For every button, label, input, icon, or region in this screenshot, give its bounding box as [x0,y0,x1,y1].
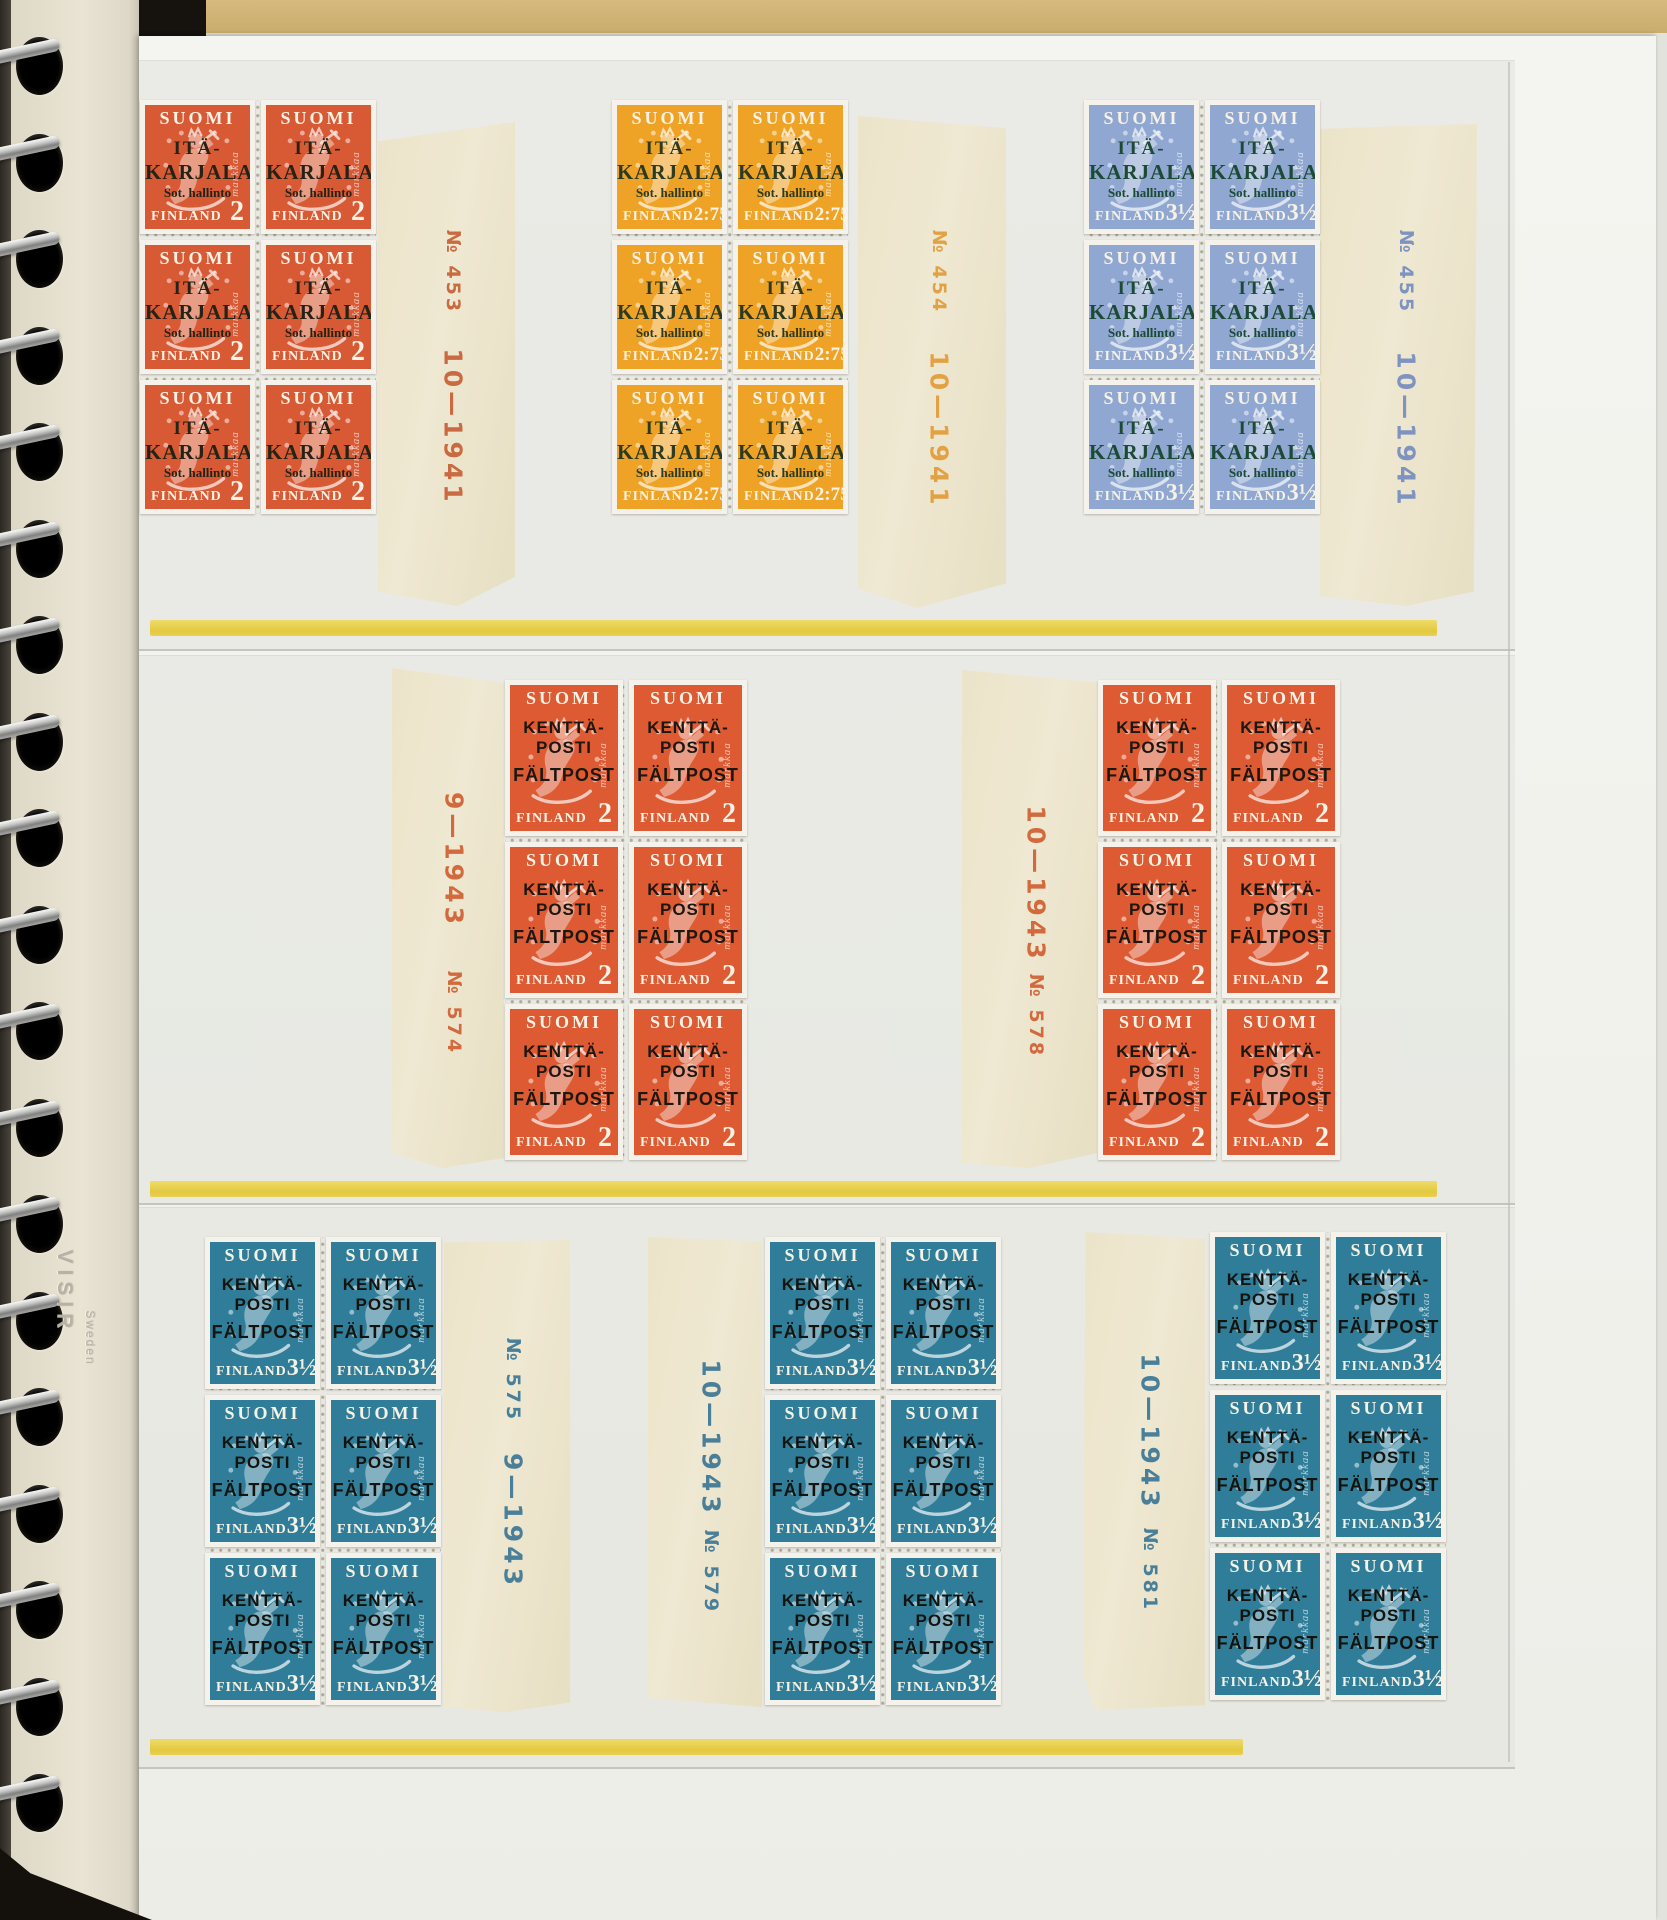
stamp-overprint: KENTTÄ-POSTIFÄLTPOST [1227,880,1335,948]
stamp: SUOMI markkaa KENTTÄ-POSTIFÄLTPOST [205,1237,320,1389]
stamp-finland-label: FINLAND [1216,489,1287,505]
stamp-finland-label: FINLAND [516,811,587,827]
stamp-denomination: 3½ [1292,1668,1320,1691]
overprint-line: KENTTÄ- [510,880,618,900]
stamp-foot: FINLAND 2:75 [617,205,722,225]
stamp-finland-label: FINLAND [337,1522,408,1538]
overprint-line: Sot. hallinto [738,186,843,201]
overprint-line: Sot. hallinto [617,326,722,341]
stamp-overprint: KENTTÄ-POSTIFÄLTPOST [331,1275,436,1343]
stamp-face: SUOMI markkaa KENTTÄ-POSTIFÄLTPOST [891,1242,996,1384]
stamp-block: SUOMI markkaa KENTTÄ-POSTIFÄLTPOST [1098,680,1340,1160]
stamp: SUOMI markkaa ITÄ-KARJALASot. hall [261,380,376,514]
overprint-line: KENTTÄ- [510,1042,618,1062]
stamp-denomination: 2 [722,963,736,988]
overprint-line: POSTI [1336,1448,1441,1468]
overprint-line: KARJALA [1210,440,1315,464]
overprint-line: FÄLTPOST [770,1480,875,1501]
overprint-line: POSTI [1215,1290,1320,1310]
stamp-country-label: SUOMI [1215,1240,1320,1261]
overprint-line: FÄLTPOST [891,1322,996,1343]
stamp-face: SUOMI markkaa ITÄ-KARJALASot. hall [1210,385,1315,509]
stamp-denomination: 3½ [968,1515,996,1538]
overprint-line: FÄLTPOST [770,1638,875,1659]
stamp-foot: FINLAND 2:75 [738,485,843,505]
overprint-line: POSTI [1215,1606,1320,1626]
stamp-face: SUOMI markkaa ITÄ-KARJALASot. hall [1210,105,1315,229]
stamp-country-label: SUOMI [891,1561,996,1582]
stamp-finland-label: FINLAND [151,209,222,225]
stamp-face: SUOMI markkaa ITÄ-KARJALASot. hall [738,385,843,509]
stamp-finland-label: FINLAND [640,973,711,989]
stamp-country-label: SUOMI [210,1403,315,1424]
stamp-face: SUOMI markkaa KENTTÄ-POSTIFÄLTPOST [1336,1553,1441,1695]
overprint-line: POSTI [634,738,742,758]
overprint-line: FÄLTPOST [634,765,742,786]
stamp-overprint: ITÄ-KARJALASot. hallinto [1210,418,1315,481]
stamp-overprint: KENTTÄ-POSTIFÄLTPOST [510,1042,618,1110]
stamp-denomination: 2 [598,963,612,988]
overprint-line: FÄLTPOST [1227,927,1335,948]
overprint-line: KENTTÄ- [891,1591,996,1611]
overprint-line: KARJALA [1089,440,1194,464]
stamp-finland-label: FINLAND [640,811,711,827]
stamp: SUOMI markkaa ITÄ-KARJALASot. hall [1084,240,1199,374]
plate-number-label: № 575 [502,1338,524,1422]
overprint-line: KENTTÄ- [1215,1270,1320,1290]
stamp-foot: FINLAND 2 [1103,801,1211,827]
stamp: SUOMI markkaa KENTTÄ-POSTIFÄLTPOST [886,1395,1001,1547]
overprint-line: KENTTÄ- [770,1433,875,1453]
stamp-overprint: ITÄ-KARJALASot. hallinto [617,278,722,341]
stamp-denomination: 2 [598,1125,612,1150]
overprint-line: POSTI [1103,1062,1211,1082]
stamp-face: SUOMI markkaa ITÄ-KARJALASot. hall [1089,385,1194,509]
stamp-face: SUOMI markkaa KENTTÄ-POSTIFÄLTPOST [891,1400,996,1542]
stamp-overprint: ITÄ-KARJALASot. hallinto [266,278,371,341]
stamp-finland-label: FINLAND [272,209,343,225]
yellow-rule-row3 [150,1739,1243,1755]
stamp-finland-label: FINLAND [337,1364,408,1380]
overprint-line: ITÄ- [738,278,843,300]
overprint-line: KENTTÄ- [770,1591,875,1611]
stamp-denomination: 3½ [847,1515,875,1538]
overprint-line: POSTI [210,1295,315,1315]
plate-number-label: № 574 [443,971,465,1055]
stamp: SUOMI markkaa KENTTÄ-POSTIFÄLTPOST [505,842,623,998]
stamp-face: SUOMI markkaa KENTTÄ-POSTIFÄLTPOST [210,1242,315,1384]
stamp-album-photo: VISIR Sweden № 45310—1941 SUOMI [0,0,1667,1920]
overprint-line: ITÄ- [266,418,371,440]
stamp-finland-label: FINLAND [744,489,815,505]
overprint-line: FÄLTPOST [1215,1317,1320,1338]
stamp-overprint: KENTTÄ-POSTIFÄLTPOST [891,1433,996,1501]
yellow-rule-row1 [150,620,1437,636]
stamp-face: SUOMI markkaa KENTTÄ-POSTIFÄLTPOST [1215,1553,1320,1695]
stamp-foot: FINLAND 2 [1227,1125,1335,1151]
stamp-finland-label: FINLAND [640,1135,711,1151]
stamp-denomination: 3½ [1292,1510,1320,1533]
stamp: SUOMI markkaa KENTTÄ-POSTIFÄLTPOST [1331,1232,1446,1384]
stamp-overprint: KENTTÄ-POSTIFÄLTPOST [1215,1270,1320,1338]
stamp-block: SUOMI markkaa ITÄ-KARJALASot. hall [140,100,376,514]
stamp-finland-label: FINLAND [1221,1517,1292,1533]
stamp-denomination: 3½ [287,1357,315,1380]
stamp-country-label: SUOMI [331,1245,436,1266]
overprint-line: FÄLTPOST [210,1322,315,1343]
stamp: SUOMI markkaa ITÄ-KARJALASot. hall [1084,100,1199,234]
overprint-line: FÄLTPOST [1103,765,1211,786]
stamp-finland-label: FINLAND [897,1364,968,1380]
overprint-line: POSTI [891,1611,996,1631]
stamp-face: SUOMI markkaa KENTTÄ-POSTIFÄLTPOST [1215,1395,1320,1537]
stamp-face: SUOMI markkaa KENTTÄ-POSTIFÄLTPOST [891,1558,996,1700]
overprint-line: Sot. hallinto [617,466,722,481]
overprint-line: FÄLTPOST [210,1638,315,1659]
stamp-overprint: KENTTÄ-POSTIFÄLTPOST [1103,880,1211,948]
stamp-foot: FINLAND 2 [1103,963,1211,989]
stamp-overprint: KENTTÄ-POSTIFÄLTPOST [1103,718,1211,786]
stamp: SUOMI markkaa KENTTÄ-POSTIFÄLTPOST [505,1004,623,1160]
stamp-finland-label: FINLAND [1216,349,1287,365]
overprint-line: KARJALA [266,300,371,324]
stamp-denomination: 3½ [968,1673,996,1696]
stamp-denomination: 3½ [1413,1352,1441,1375]
overprint-line: FÄLTPOST [891,1480,996,1501]
stamp: SUOMI markkaa KENTTÄ-POSTIFÄLTPOST [629,680,747,836]
plate-number-label: № 578 [1025,974,1047,1058]
overprint-line: POSTI [1103,738,1211,758]
stamp-face: SUOMI markkaa KENTTÄ-POSTIFÄLTPOST [210,1400,315,1542]
stamp-country-label: SUOMI [770,1561,875,1582]
stamp-overprint: ITÄ-KARJALASot. hallinto [266,418,371,481]
stamp: SUOMI markkaa ITÄ-KARJALASot. hall [612,380,727,514]
stamp-finland-label: FINLAND [897,1522,968,1538]
stamp-denomination: 3½ [968,1357,996,1380]
overprint-line: FÄLTPOST [634,1089,742,1110]
overprint-line: KARJALA [738,160,843,184]
stamp-face: SUOMI markkaa KENTTÄ-POSTIFÄLTPOST [770,1242,875,1384]
stamp-block: SUOMI markkaa KENTTÄ-POSTIFÄLTPOST [765,1237,1001,1705]
stamp-face: SUOMI markkaa KENTTÄ-POSTIFÄLTPOST [1336,1237,1441,1379]
stamp-denomination: 2 [230,339,244,364]
stamp: SUOMI markkaa KENTTÄ-POSTIFÄLTPOST [505,680,623,836]
printing-date-label: 9—1943 [439,792,468,928]
overprint-line: KENTTÄ- [331,1433,436,1453]
overprint-line: FÄLTPOST [770,1322,875,1343]
stamp: SUOMI markkaa ITÄ-KARJALASot. hall [1205,380,1320,514]
stamp-denomination: 3½ [847,1357,875,1380]
stamp-face: SUOMI markkaa KENTTÄ-POSTIFÄLTPOST [510,847,618,993]
stamp-finland-label: FINLAND [1221,1359,1292,1375]
stamp-country-label: SUOMI [210,1561,315,1582]
stamp: SUOMI markkaa KENTTÄ-POSTIFÄLTPOST [1222,842,1340,998]
overprint-line: KENTTÄ- [210,1275,315,1295]
stamp-country-label: SUOMI [1103,1012,1211,1033]
stamp-foot: FINLAND 3½ [1210,482,1315,505]
stamp-foot: FINLAND 3½ [891,1673,996,1696]
stamp-foot: FINLAND 2 [1227,963,1335,989]
stamp-foot: FINLAND 3½ [1089,342,1194,365]
overprint-line: FÄLTPOST [510,765,618,786]
overprint-line: KARJALA [1210,300,1315,324]
overprint-line: Sot. hallinto [1210,186,1315,201]
overprint-line: POSTI [210,1611,315,1631]
overprint-line: KENTTÄ- [210,1591,315,1611]
stamp-country-label: SUOMI [1215,1556,1320,1577]
stamp: SUOMI markkaa KENTTÄ-POSTIFÄLTPOST [1222,1004,1340,1160]
stamp-foot: FINLAND 3½ [1336,1510,1441,1533]
stamp-finland-label: FINLAND [516,973,587,989]
stamp-finland-label: FINLAND [1109,811,1180,827]
stamp-face: SUOMI markkaa KENTTÄ-POSTIFÄLTPOST [210,1558,315,1700]
overprint-line: ITÄ- [1089,138,1194,160]
plate-number-label: № 453 [442,230,464,314]
stamp: SUOMI markkaa KENTTÄ-POSTIFÄLTPOST [205,1553,320,1705]
stamp: SUOMI markkaa KENTTÄ-POSTIFÄLTPOST [765,1553,880,1705]
overprint-line: ITÄ- [1210,278,1315,300]
stamp-foot: FINLAND 2 [266,479,371,505]
stamp-country-label: SUOMI [510,688,618,709]
stamp: SUOMI markkaa ITÄ-KARJALASot. hall [733,380,848,514]
overprint-line: KENTTÄ- [210,1433,315,1453]
stamp-denomination: 2:75 [815,345,843,364]
stamp-denomination: 3½ [408,1515,436,1538]
overprint-line: POSTI [1336,1606,1441,1626]
stamp-block: SUOMI markkaa ITÄ-KARJALASot. hall [612,100,848,514]
stamp-face: SUOMI markkaa KENTTÄ-POSTIFÄLTPOST [1227,685,1335,831]
stamp-finland-label: FINLAND [623,209,694,225]
stamp-foot: FINLAND 2 [510,801,618,827]
stamp-overprint: KENTTÄ-POSTIFÄLTPOST [770,1591,875,1659]
stamp-finland-label: FINLAND [744,349,815,365]
stamp-denomination: 2 [1191,1125,1205,1150]
stamp-finland-label: FINLAND [776,1680,847,1696]
stamp: SUOMI markkaa KENTTÄ-POSTIFÄLTPOST [326,1553,441,1705]
stamp-denomination: 2 [351,339,365,364]
stamp-denomination: 3½ [408,1357,436,1380]
stamp-denomination: 3½ [1292,1352,1320,1375]
stamp: SUOMI markkaa KENTTÄ-POSTIFÄLTPOST [1331,1548,1446,1700]
stamp-denomination: 3½ [408,1673,436,1696]
overprint-line: KENTTÄ- [1227,718,1335,738]
stamp-face: SUOMI markkaa KENTTÄ-POSTIFÄLTPOST [1227,1009,1335,1155]
stamp-overprint: KENTTÄ-POSTIFÄLTPOST [1215,1586,1320,1654]
stamp-country-label: SUOMI [1336,1398,1441,1419]
overprint-line: ITÄ- [145,138,250,160]
stamp-face: SUOMI markkaa KENTTÄ-POSTIFÄLTPOST [634,847,742,993]
overprint-line: ITÄ- [738,138,843,160]
stamp-foot: FINLAND 2 [1103,1125,1211,1151]
stamp-overprint: KENTTÄ-POSTIFÄLTPOST [331,1591,436,1659]
overprint-line: FÄLTPOST [1336,1475,1441,1496]
stamp-foot: FINLAND 2:75 [617,485,722,505]
overprint-line: FÄLTPOST [1227,1089,1335,1110]
overprint-line: FÄLTPOST [891,1638,996,1659]
overprint-line: POSTI [331,1295,436,1315]
stamp-country-label: SUOMI [331,1403,436,1424]
stamp-denomination: 3½ [1166,342,1194,365]
stamp: SUOMI markkaa KENTTÄ-POSTIFÄLTPOST [1210,1548,1325,1700]
stamp-denomination: 2 [351,199,365,224]
overprint-line: ITÄ- [266,278,371,300]
stamp-face: SUOMI markkaa ITÄ-KARJALASot. hall [617,245,722,369]
overprint-line: ITÄ- [145,418,250,440]
stamp-overprint: ITÄ-KARJALASot. hallinto [1089,418,1194,481]
stamp-finland-label: FINLAND [151,489,222,505]
stamp-finland-label: FINLAND [1095,489,1166,505]
overprint-line: KENTTÄ- [1227,1042,1335,1062]
stamp-finland-label: FINLAND [1109,1135,1180,1151]
stamp-finland-label: FINLAND [623,489,694,505]
overprint-line: KARJALA [145,160,250,184]
stamp-denomination: 3½ [1413,1510,1441,1533]
stamp: SUOMI markkaa KENTTÄ-POSTIFÄLTPOST [205,1395,320,1547]
stamp-foot: FINLAND 3½ [770,1673,875,1696]
stamp-face: SUOMI markkaa KENTTÄ-POSTIFÄLTPOST [770,1558,875,1700]
overprint-line: KENTTÄ- [1215,1586,1320,1606]
overprint-line: POSTI [634,900,742,920]
stamp: SUOMI markkaa ITÄ-KARJALASot. hall [733,100,848,234]
stamp-overprint: KENTTÄ-POSTIFÄLTPOST [1215,1428,1320,1496]
overprint-line: POSTI [891,1295,996,1315]
stamp-foot: FINLAND 2 [634,801,742,827]
stamp-face: SUOMI markkaa ITÄ-KARJALASot. hall [617,385,722,509]
overprint-line: KENTTÄ- [1336,1586,1441,1606]
stamp: SUOMI markkaa ITÄ-KARJALASot. hall [612,100,727,234]
stamp-overprint: KENTTÄ-POSTIFÄLTPOST [770,1433,875,1501]
stamp-overprint: ITÄ-KARJALASot. hallinto [145,418,250,481]
stamp-overprint: ITÄ-KARJALASot. hallinto [145,278,250,341]
overprint-line: KENTTÄ- [331,1275,436,1295]
overprint-line: POSTI [891,1453,996,1473]
stamp: SUOMI markkaa KENTTÄ-POSTIFÄLTPOST [886,1553,1001,1705]
stamp: SUOMI markkaa KENTTÄ-POSTIFÄLTPOST [326,1237,441,1389]
stamp: SUOMI markkaa KENTTÄ-POSTIFÄLTPOST [1210,1390,1325,1542]
stamp-foot: FINLAND 2 [510,1125,618,1151]
stamp-face: SUOMI markkaa ITÄ-KARJALASot. hall [1089,245,1194,369]
stamp-denomination: 2 [1191,963,1205,988]
overprint-line: KENTTÄ- [634,880,742,900]
stamp-overprint: KENTTÄ-POSTIFÄLTPOST [891,1275,996,1343]
stamp-foot: FINLAND 3½ [1089,482,1194,505]
stamp-overprint: ITÄ-KARJALASot. hallinto [617,138,722,201]
overprint-line: ITÄ- [1089,418,1194,440]
stamp: SUOMI markkaa ITÄ-KARJALASot. hall [140,100,255,234]
stamp-foot: FINLAND 3½ [770,1515,875,1538]
stamp-face: SUOMI markkaa KENTTÄ-POSTIFÄLTPOST [1103,1009,1211,1155]
stamp-overprint: KENTTÄ-POSTIFÄLTPOST [210,1275,315,1343]
stamp-block: SUOMI markkaa ITÄ-KARJALASot. hall [1084,100,1320,514]
stamp-face: SUOMI markkaa ITÄ-KARJALASot. hall [738,245,843,369]
overprint-line: KARJALA [266,160,371,184]
overprint-line: KARJALA [145,300,250,324]
stamp-overprint: KENTTÄ-POSTIFÄLTPOST [770,1275,875,1343]
stamp-face: SUOMI markkaa ITÄ-KARJALASot. hall [266,385,371,509]
overprint-line: POSTI [510,1062,618,1082]
overprint-line: KENTTÄ- [891,1433,996,1453]
overprint-line: KENTTÄ- [1103,718,1211,738]
stamp-foot: FINLAND 2:75 [738,345,843,365]
stamp: SUOMI markkaa KENTTÄ-POSTIFÄLTPOST [1098,680,1216,836]
stamp-foot: FINLAND 2 [634,963,742,989]
overprint-line: ITÄ- [617,138,722,160]
stamp: SUOMI markkaa ITÄ-KARJALASot. hall [1084,380,1199,514]
stamp-country-label: SUOMI [634,850,742,871]
overprint-line: POSTI [770,1295,875,1315]
stamp-denomination: 3½ [287,1673,315,1696]
stamp-foot: FINLAND 3½ [331,1673,436,1696]
stamp-overprint: KENTTÄ-POSTIFÄLTPOST [634,1042,742,1110]
album-brand-embossing: VISIR [52,1250,76,1335]
stamp-face: SUOMI markkaa KENTTÄ-POSTIFÄLTPOST [331,1400,436,1542]
stamp: SUOMI markkaa ITÄ-KARJALASot. hall [733,240,848,374]
album-origin-embossing: Sweden [83,1310,97,1365]
stamp-finland-label: FINLAND [776,1522,847,1538]
stamp-face: SUOMI markkaa ITÄ-KARJALASot. hall [145,105,250,229]
stamp: SUOMI markkaa KENTTÄ-POSTIFÄLTPOST [765,1237,880,1389]
overprint-line: ITÄ- [1210,418,1315,440]
stamp-foot: FINLAND 2 [510,963,618,989]
overprint-line: POSTI [331,1453,436,1473]
stamp: SUOMI markkaa KENTTÄ-POSTIFÄLTPOST [1331,1390,1446,1542]
stamp-overprint: KENTTÄ-POSTIFÄLTPOST [210,1433,315,1501]
stamp-overprint: KENTTÄ-POSTIFÄLTPOST [331,1433,436,1501]
stamp-block: SUOMI markkaa KENTTÄ-POSTIFÄLTPOST [205,1237,441,1705]
overprint-line: KENTTÄ- [770,1275,875,1295]
stamp: SUOMI markkaa KENTTÄ-POSTIFÄLTPOST [1210,1232,1325,1384]
stamp-finland-label: FINLAND [1216,209,1287,225]
stamp-overprint: ITÄ-KARJALASot. hallinto [1210,138,1315,201]
stamp-finland-label: FINLAND [1109,973,1180,989]
overprint-line: KARJALA [738,440,843,464]
stamp-overprint: ITÄ-KARJALASot. hallinto [738,418,843,481]
stamp-foot: FINLAND 3½ [210,1357,315,1380]
stamp-face: SUOMI markkaa ITÄ-KARJALASot. hall [266,245,371,369]
stamp-overprint: ITÄ-KARJALASot. hallinto [1089,138,1194,201]
stamp-country-label: SUOMI [1336,1556,1441,1577]
stamp-overprint: KENTTÄ-POSTIFÄLTPOST [1227,718,1335,786]
stamp-country-label: SUOMI [210,1245,315,1266]
stamp: SUOMI markkaa KENTTÄ-POSTIFÄLTPOST [326,1395,441,1547]
stamp-country-label: SUOMI [770,1403,875,1424]
stamp-foot: FINLAND 2 [145,199,250,225]
stamp-foot: FINLAND 3½ [891,1515,996,1538]
stamp-finland-label: FINLAND [776,1364,847,1380]
overprint-line: KARJALA [617,440,722,464]
stamp-block: SUOMI markkaa KENTTÄ-POSTIFÄLTPOST [505,680,747,1160]
stamp-country-label: SUOMI [1215,1398,1320,1419]
stamp-overprint: KENTTÄ-POSTIFÄLTPOST [210,1591,315,1659]
stamp-denomination: 3½ [1413,1668,1441,1691]
stamp: SUOMI markkaa ITÄ-KARJALASot. hall [1205,100,1320,234]
overprint-line: KENTTÄ- [1215,1428,1320,1448]
overprint-line: Sot. hallinto [1089,326,1194,341]
stamp-foot: FINLAND 3½ [1336,1352,1441,1375]
stamp-overprint: KENTTÄ-POSTIFÄLTPOST [1227,1042,1335,1110]
stamp-denomination: 2:75 [694,345,722,364]
overprint-line: FÄLTPOST [331,1638,436,1659]
stamp: SUOMI markkaa KENTTÄ-POSTIFÄLTPOST [1098,842,1216,998]
stamp-foot: FINLAND 3½ [331,1357,436,1380]
stamp-foot: FINLAND 3½ [770,1357,875,1380]
stamp-finland-label: FINLAND [1342,1675,1413,1691]
stamp-face: SUOMI markkaa KENTTÄ-POSTIFÄLTPOST [1227,847,1335,993]
overprint-line: POSTI [1215,1448,1320,1468]
stamp-foot: FINLAND 3½ [331,1515,436,1538]
overprint-line: KARJALA [145,440,250,464]
overprint-line: POSTI [331,1611,436,1631]
